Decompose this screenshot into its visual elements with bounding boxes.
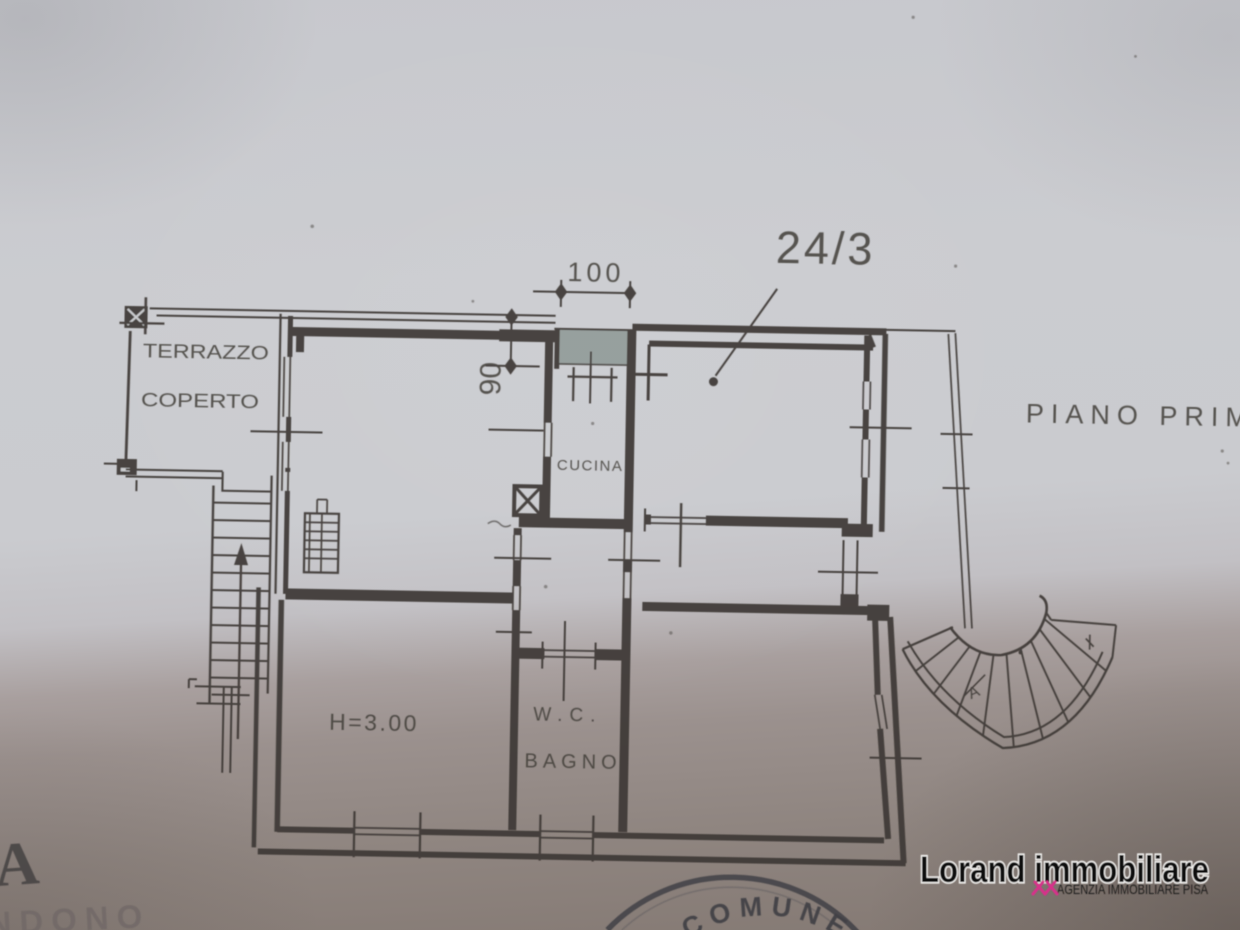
svg-text:24/3: 24/3 — [775, 222, 876, 275]
svg-text:A: A — [966, 683, 983, 703]
svg-text:CUCINA: CUCINA — [557, 457, 624, 475]
svg-text:A: A — [0, 829, 41, 900]
svg-text:NDONO: NDONO — [0, 897, 151, 930]
svg-text:AGENZIA IMMOBILIARE PISA: AGENZIA IMMOBILIARE PISA — [1057, 881, 1209, 897]
svg-text:90: 90 — [474, 362, 508, 396]
svg-text:TERRAZZO: TERRAZZO — [143, 340, 269, 364]
svg-text:W.C.: W.C. — [533, 704, 603, 726]
svg-text:H=3.00: H=3.00 — [329, 709, 419, 737]
svg-text:100: 100 — [567, 257, 625, 288]
svg-text:COPERTO: COPERTO — [141, 389, 259, 413]
svg-text:PIANO PRIMO: PIANO PRIMO — [1026, 398, 1240, 433]
svg-text:BAGNO: BAGNO — [524, 750, 622, 774]
